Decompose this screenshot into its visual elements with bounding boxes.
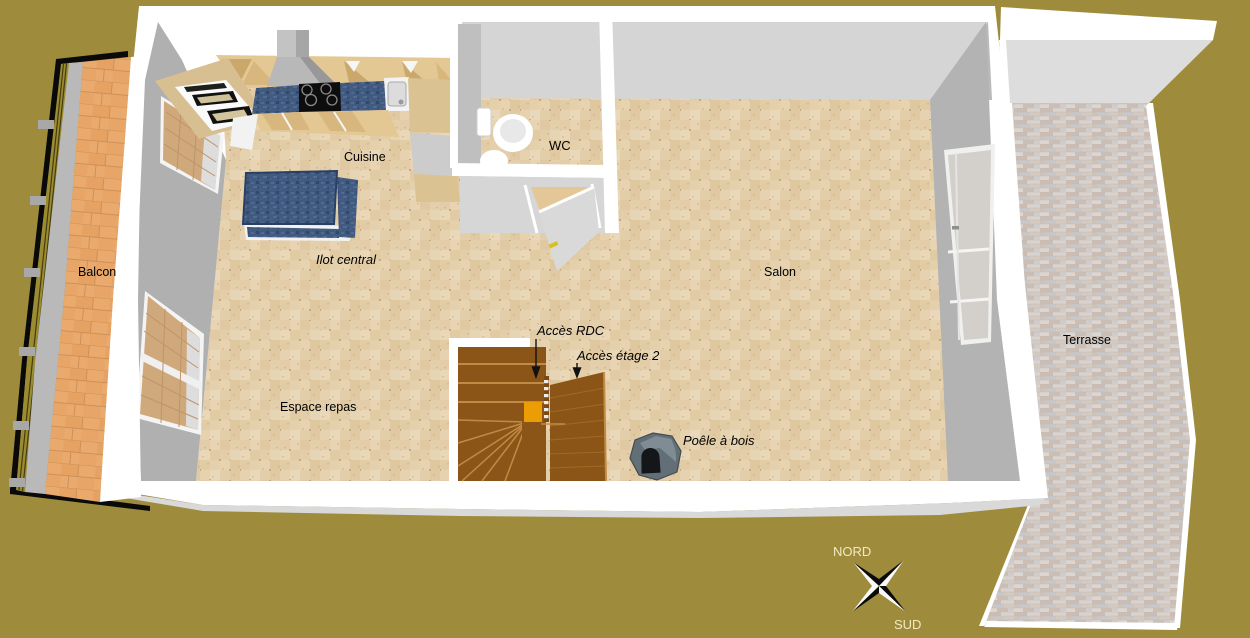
svg-text:SUD: SUD <box>894 617 921 632</box>
svg-text:NORD: NORD <box>833 544 871 559</box>
svg-text:Espace repas: Espace repas <box>280 400 356 414</box>
svg-text:Poêle à bois: Poêle à bois <box>683 433 755 448</box>
svg-text:Cuisine: Cuisine <box>344 150 386 164</box>
svg-text:Terrasse: Terrasse <box>1063 333 1111 347</box>
svg-text:Ilot central: Ilot central <box>316 252 377 267</box>
svg-text:Salon: Salon <box>764 265 796 279</box>
svg-text:Accès étage 2: Accès étage 2 <box>576 348 660 363</box>
svg-text:Accès RDC: Accès RDC <box>536 323 605 338</box>
svg-text:WC: WC <box>549 138 571 153</box>
svg-text:Balcon: Balcon <box>78 265 116 279</box>
